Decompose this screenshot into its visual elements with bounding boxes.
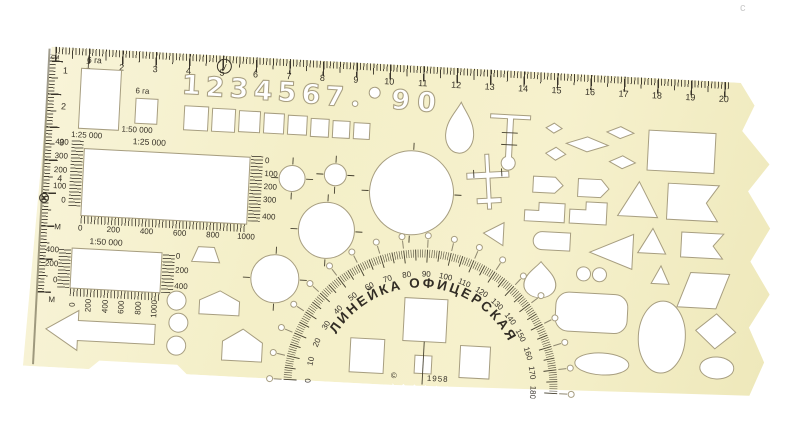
triangle-cutout xyxy=(618,181,660,218)
protractor-tick xyxy=(422,250,423,258)
protractor-tick xyxy=(544,357,555,360)
protractor-tick xyxy=(332,282,338,288)
small-circle-cutout xyxy=(576,267,591,282)
small-circle-cutout xyxy=(168,313,188,333)
square-cutout xyxy=(310,118,329,137)
protractor-tick xyxy=(309,306,316,311)
protractor-tick xyxy=(396,252,398,260)
protractor-tick xyxy=(505,283,510,290)
protractor-tick xyxy=(375,257,378,265)
protractor-tick xyxy=(315,298,322,303)
stem-mark xyxy=(502,132,518,133)
crosshair-circle-cutout xyxy=(278,165,305,192)
protractor-tick xyxy=(299,322,309,327)
protractor-degree-label: 20 xyxy=(311,336,323,348)
hectare-large-cutout xyxy=(78,68,121,130)
protractor-tick xyxy=(512,289,518,295)
keyhole-circle-cutout xyxy=(538,292,544,298)
keyhole-circle-cutout xyxy=(425,233,431,239)
ellipse-cutout xyxy=(699,356,734,380)
protractor-tick xyxy=(503,281,508,288)
protractor-tick xyxy=(546,355,554,358)
keyhole-circle-cutout xyxy=(266,375,272,381)
diamond-cutout xyxy=(546,123,563,134)
protractor-tick xyxy=(287,353,295,355)
protractor-tick xyxy=(549,374,557,376)
keyhole-circle-cutout xyxy=(326,263,332,269)
protractor-tick xyxy=(311,304,318,309)
protractor-tick xyxy=(382,255,385,263)
keyhole-circle-cutout xyxy=(291,301,297,307)
protractor-tick xyxy=(436,250,437,258)
protractor-tick xyxy=(308,308,315,313)
protractor-tick xyxy=(380,255,385,267)
diamond-cutout xyxy=(545,147,566,161)
machine-gun-symbol-cutout xyxy=(488,114,531,171)
diamond-cutout xyxy=(566,136,609,153)
keyhole-stem xyxy=(277,353,285,355)
cutout-shapes-layer: 0102030405060708090100110120130140150160… xyxy=(21,40,782,411)
protractor-tick xyxy=(469,260,474,272)
keyhole-stem xyxy=(402,241,404,249)
protractor-tick xyxy=(420,249,421,257)
protractor-tick xyxy=(408,250,410,258)
protractor-tick xyxy=(285,363,293,364)
small-circle-cutout xyxy=(166,336,186,356)
square-cutout xyxy=(263,113,284,134)
protractor-degree-label: 0 xyxy=(303,378,312,383)
step-shape-cutout xyxy=(569,201,607,225)
protractor-tick xyxy=(546,353,554,356)
protractor-tick xyxy=(292,337,300,340)
protractor-tick xyxy=(510,288,516,294)
diamond-cutout xyxy=(695,313,737,350)
dot-cutout xyxy=(352,101,358,107)
protractor-tick xyxy=(525,306,531,311)
protractor-tick xyxy=(385,254,388,262)
keyhole-stem xyxy=(353,256,357,263)
house-cutout xyxy=(199,290,240,316)
protractor-tick xyxy=(521,300,527,306)
ellipse-cutout xyxy=(636,300,687,374)
keyhole-stem xyxy=(313,286,319,291)
protractor-tick xyxy=(537,335,547,340)
protractor-tick xyxy=(465,258,468,266)
protractor-tick xyxy=(378,256,381,264)
keyhole-circle-cutout xyxy=(373,239,379,245)
ellipse-cutout xyxy=(574,352,629,377)
rounded-rect-cutout xyxy=(555,291,629,334)
protractor-tick xyxy=(445,252,447,260)
protractor-tick xyxy=(438,251,440,262)
protractor-tick xyxy=(403,251,406,264)
pennant-cutout xyxy=(533,176,564,194)
protractor-tick xyxy=(330,283,336,289)
keyhole-circle-cutout xyxy=(451,236,457,242)
protractor-tick xyxy=(518,296,524,302)
keyhole-circle-cutout xyxy=(520,273,526,279)
protractor-tick xyxy=(406,250,408,258)
protractor-tick xyxy=(425,250,426,258)
keyhole-circle-cutout xyxy=(270,349,276,355)
protractor-tick xyxy=(549,386,557,387)
square-cutout xyxy=(184,106,209,131)
keyhole-circle-cutout xyxy=(567,365,573,371)
protractor-tick xyxy=(549,379,557,380)
house-cutout xyxy=(222,328,264,362)
protractor-tick xyxy=(539,346,551,351)
teardrop-cutout xyxy=(445,102,476,154)
officer-ruler: 1234567891011121314151617181920 см у 123… xyxy=(21,40,782,411)
diamond-cutout xyxy=(607,126,635,139)
protractor-tick xyxy=(498,278,505,287)
protractor-tick xyxy=(542,341,550,344)
triangle-left-cutout xyxy=(589,232,634,269)
diamond-cutout xyxy=(609,155,636,169)
protractor-tick xyxy=(549,388,557,389)
step-shape-cutout xyxy=(524,202,565,223)
copyright-mark: © xyxy=(391,371,397,380)
keyhole-circle-cutout xyxy=(399,233,405,239)
keyhole-stem xyxy=(553,343,561,346)
keyhole-circle-cutout xyxy=(307,280,313,286)
protractor-tick xyxy=(327,286,333,292)
protractor-tick xyxy=(391,252,394,263)
trapezoid-cutout xyxy=(192,246,221,262)
photo-watermark: с xyxy=(740,2,746,14)
keyhole-stem xyxy=(496,263,500,270)
protractor-tick xyxy=(292,340,300,343)
protractor-tick xyxy=(410,250,411,258)
protractor-tick xyxy=(289,346,297,348)
protractor-tick xyxy=(507,284,512,290)
protractor-tick xyxy=(443,252,444,260)
keyhole-stem xyxy=(531,298,537,303)
protractor-tick xyxy=(352,268,357,275)
protractor-tick xyxy=(291,342,299,345)
protractor-tick xyxy=(418,250,419,258)
parallelogram-cutout xyxy=(677,272,730,310)
protractor-degree-label: 170 xyxy=(527,366,538,381)
protractor-degree-label: 160 xyxy=(522,346,535,362)
protractor-tick xyxy=(547,360,555,362)
protractor-tick xyxy=(286,360,294,362)
protractor-tick xyxy=(498,277,503,284)
square-cutout xyxy=(353,123,370,140)
square-cutout xyxy=(287,115,307,135)
protractor-tick xyxy=(340,276,345,282)
protractor-tick xyxy=(549,372,557,374)
protractor-degree-label: 180 xyxy=(528,385,538,399)
rectangle-cutout xyxy=(647,130,716,173)
keyhole-stem xyxy=(285,329,293,332)
protractor-tick xyxy=(284,379,297,380)
protractor-tick xyxy=(286,358,294,360)
protractor-tick xyxy=(502,280,507,287)
protractor-tick xyxy=(285,365,293,366)
keyhole-circle-cutout xyxy=(562,339,568,345)
protractor-tick xyxy=(452,253,454,261)
square-cutout xyxy=(459,346,491,380)
square-cutout xyxy=(332,121,350,139)
protractor-tick xyxy=(526,308,533,313)
protractor-tick xyxy=(284,377,292,378)
triangle-cutout xyxy=(638,228,667,254)
protractor-tick xyxy=(325,288,331,294)
protractor-tick xyxy=(548,365,556,367)
square-cutout xyxy=(403,298,448,343)
protractor-tick xyxy=(387,254,390,262)
stem-mark xyxy=(501,144,517,145)
protractor-tick xyxy=(318,295,324,300)
protractor-tick xyxy=(415,250,417,261)
protractor-tick xyxy=(317,297,324,302)
protractor-tick xyxy=(532,318,539,323)
protractor-tick xyxy=(543,369,556,372)
square-cutout xyxy=(238,111,260,133)
protractor-tick xyxy=(314,300,321,305)
ring-cutout xyxy=(369,87,381,99)
keyhole-stem xyxy=(544,319,551,323)
small-circle-cutout xyxy=(592,267,607,282)
swallowtail-flag-cutout xyxy=(681,232,724,259)
keyhole-stem xyxy=(515,279,520,285)
protractor-tick xyxy=(549,384,557,385)
keyhole-circle-cutout xyxy=(499,257,505,263)
keyhole-stem xyxy=(377,246,380,254)
crosshair-circle-cutout xyxy=(324,163,347,186)
protractor-tick xyxy=(456,255,458,263)
protractor-tick xyxy=(549,377,557,378)
protractor-tick xyxy=(289,349,297,351)
protractor-tick xyxy=(494,274,499,281)
scale-50000-window xyxy=(70,248,162,293)
protractor-tick xyxy=(399,251,401,259)
protractor-tick xyxy=(287,356,300,359)
small-circle-cutout xyxy=(167,291,187,311)
protractor-tick xyxy=(429,250,430,258)
protractor-tick xyxy=(432,250,433,258)
protractor-tick xyxy=(322,291,328,297)
protractor-tick xyxy=(543,344,551,347)
protractor-tick xyxy=(284,372,292,373)
triangle-cutout xyxy=(651,265,670,284)
protractor-tick xyxy=(394,252,396,260)
protractor-tick xyxy=(454,254,456,262)
protractor-tick xyxy=(434,250,435,258)
protractor-tick xyxy=(527,310,534,315)
protractor-tick xyxy=(458,255,460,263)
protractor-tick xyxy=(284,370,292,371)
protractor-tick xyxy=(441,251,442,259)
keyhole-circle-cutout xyxy=(278,324,284,330)
arrow-cutout xyxy=(45,309,156,355)
protractor-tick xyxy=(323,290,329,296)
protractor-tick xyxy=(513,291,519,297)
keyhole-stem xyxy=(558,368,566,370)
protractor-tick xyxy=(544,348,552,351)
keyhole-circle-cutout xyxy=(552,315,558,321)
scale-25000-window xyxy=(81,149,250,225)
protractor-tick xyxy=(547,362,555,364)
protractor-tick xyxy=(522,302,528,308)
crosshair-circle-cutout xyxy=(297,201,356,260)
protractor-tick xyxy=(284,375,292,376)
protractor-tick xyxy=(343,273,348,280)
protractor-tick xyxy=(467,258,470,266)
keyhole-circle-cutout xyxy=(349,249,355,255)
protractor-tick xyxy=(285,367,296,369)
year-label: 1958 xyxy=(427,374,449,384)
protractor-tick xyxy=(548,367,556,369)
protractor-tick xyxy=(336,279,342,285)
protractor-tick xyxy=(288,351,296,353)
pennant-cutout xyxy=(578,178,610,198)
square-cutout xyxy=(211,108,235,132)
keyhole-stem xyxy=(332,269,337,275)
protractor-tick xyxy=(334,280,340,286)
protractor-tick xyxy=(447,252,449,260)
protractor-tick xyxy=(515,293,521,299)
keyhole-stem xyxy=(297,306,304,310)
swallowtail-flag-cutout xyxy=(666,183,719,222)
protractor-tick xyxy=(369,259,374,269)
crosshair-circle-cutout xyxy=(250,253,300,303)
protractor-degree-label: 10 xyxy=(305,355,316,366)
hectare-small-cutout xyxy=(135,98,158,124)
photo-stage: с 1234567891011121314151617181920 см у 1… xyxy=(0,0,800,430)
square-cutout xyxy=(349,338,385,374)
keyhole-stem xyxy=(475,251,478,259)
protractor-tick xyxy=(549,391,557,392)
keyhole-circle-cutout xyxy=(476,244,482,250)
protractor-tick xyxy=(496,275,501,282)
rounded-end-rect-cutout xyxy=(533,231,571,251)
protractor-tick xyxy=(544,393,557,394)
protractor-tick xyxy=(427,250,428,263)
keyhole-stem xyxy=(452,243,454,251)
protractor-tick xyxy=(519,298,525,304)
protractor-tick xyxy=(389,253,392,261)
triangle-left-cutout xyxy=(483,222,504,246)
protractor-tick xyxy=(462,257,465,265)
keyhole-circle-cutout xyxy=(568,391,574,397)
protractor-tick xyxy=(480,265,485,275)
protractor-tick xyxy=(545,351,553,354)
protractor-tick xyxy=(401,251,403,259)
protractor-tick xyxy=(341,274,346,281)
crosshair-circle-cutout xyxy=(367,149,455,237)
protractor-tick xyxy=(312,302,321,309)
protractor-tick xyxy=(294,333,306,338)
protractor-tick xyxy=(546,381,557,383)
protractor-tick xyxy=(448,253,451,266)
protractor-tick xyxy=(413,250,414,258)
